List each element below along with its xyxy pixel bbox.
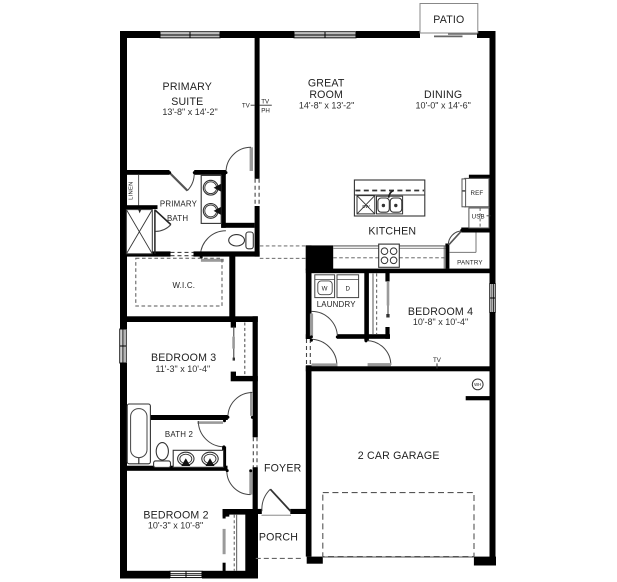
svg-text:13'-8" x 14'-2": 13'-8" x 14'-2"	[162, 107, 217, 117]
svg-text:GREAT: GREAT	[308, 78, 345, 90]
svg-text:LAUNDRY: LAUNDRY	[317, 300, 357, 309]
svg-text:BATH: BATH	[167, 214, 188, 223]
svg-text:WH: WH	[474, 382, 481, 387]
svg-text:D: D	[345, 286, 350, 293]
svg-text:2 CAR GARAGE: 2 CAR GARAGE	[358, 450, 440, 462]
svg-text:ROOM: ROOM	[309, 89, 343, 101]
svg-text:PORCH: PORCH	[259, 532, 298, 544]
svg-text:W: W	[322, 286, 328, 293]
svg-text:11'-3" x 10'-4": 11'-3" x 10'-4"	[155, 364, 210, 374]
svg-text:W.I.C.: W.I.C.	[172, 281, 195, 290]
svg-text:TV: TV	[433, 357, 442, 364]
svg-text:BEDROOM 3: BEDROOM 3	[151, 352, 216, 364]
svg-text:LINEN: LINEN	[129, 181, 135, 200]
svg-text:USB: USB	[472, 213, 485, 220]
svg-text:10'-3" x 10'-8": 10'-3" x 10'-8"	[148, 521, 203, 531]
svg-text:14'-8" x 13'-2": 14'-8" x 13'-2"	[299, 101, 354, 111]
svg-text:BATH 2: BATH 2	[165, 430, 193, 439]
svg-text:PRIMARY: PRIMARY	[160, 200, 198, 209]
svg-text:PH: PH	[261, 107, 270, 114]
svg-text:REF: REF	[470, 190, 483, 197]
svg-text:10'-8" x 10'-4": 10'-8" x 10'-4"	[413, 317, 468, 327]
svg-text:PANTRY: PANTRY	[457, 260, 482, 267]
svg-text:KITCHEN: KITCHEN	[368, 225, 416, 237]
svg-text:10'-0" x 14'-6": 10'-0" x 14'-6"	[416, 100, 471, 110]
svg-text:PATIO: PATIO	[433, 14, 464, 26]
svg-text:FOYER: FOYER	[264, 463, 302, 475]
svg-text:DW: DW	[362, 204, 370, 209]
svg-text:DINING: DINING	[424, 89, 462, 101]
svg-text:TV: TV	[261, 99, 270, 106]
svg-text:PRIMARY: PRIMARY	[163, 81, 212, 93]
svg-text:TV: TV	[242, 103, 251, 110]
svg-text:BEDROOM 2: BEDROOM 2	[143, 509, 208, 521]
